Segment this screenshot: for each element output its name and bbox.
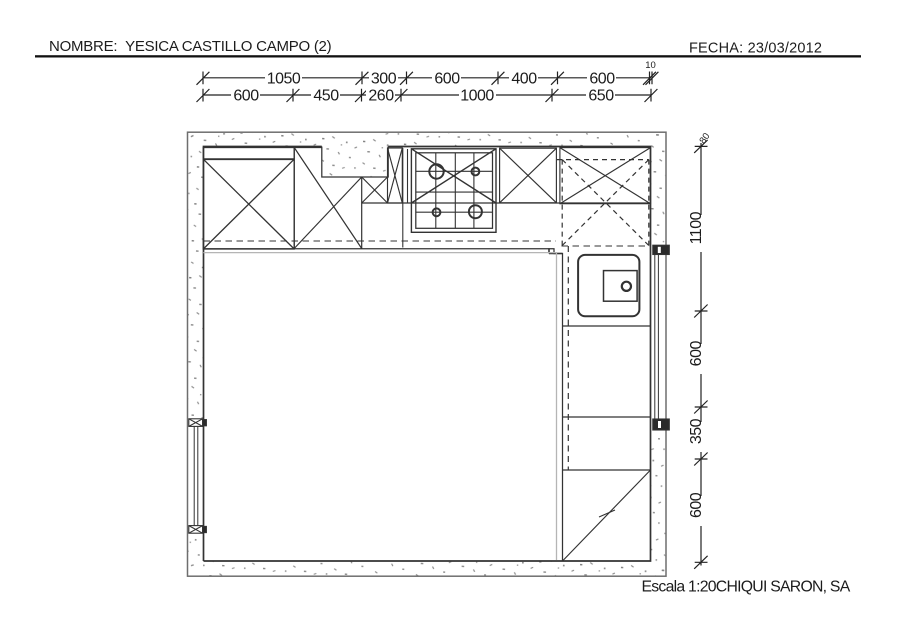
svg-text:80: 80: [697, 131, 712, 146]
svg-text:400: 400: [511, 70, 537, 87]
svg-text:350: 350: [688, 418, 705, 444]
svg-text:600: 600: [434, 70, 460, 87]
svg-text:600: 600: [688, 341, 705, 367]
svg-text:600: 600: [589, 70, 615, 87]
svg-text:450: 450: [313, 88, 339, 105]
svg-text:600: 600: [688, 492, 705, 518]
svg-text:Escala 1:20CHIQUI SARON, SA: Escala 1:20CHIQUI SARON, SA: [642, 578, 851, 595]
svg-text:650: 650: [588, 88, 614, 105]
svg-text:10: 10: [645, 60, 656, 71]
svg-text:600: 600: [233, 88, 259, 105]
svg-text:FECHA: 23/03/2012: FECHA: 23/03/2012: [689, 40, 822, 56]
svg-text:260: 260: [368, 88, 394, 105]
svg-text:NOMBRE: YESICA CASTILLO CAMPO: NOMBRE: YESICA CASTILLO CAMPO (2): [49, 38, 332, 55]
svg-text:300: 300: [371, 70, 397, 87]
svg-text:1100: 1100: [688, 211, 705, 244]
svg-text:1000: 1000: [460, 88, 494, 105]
svg-text:1050: 1050: [267, 70, 301, 87]
